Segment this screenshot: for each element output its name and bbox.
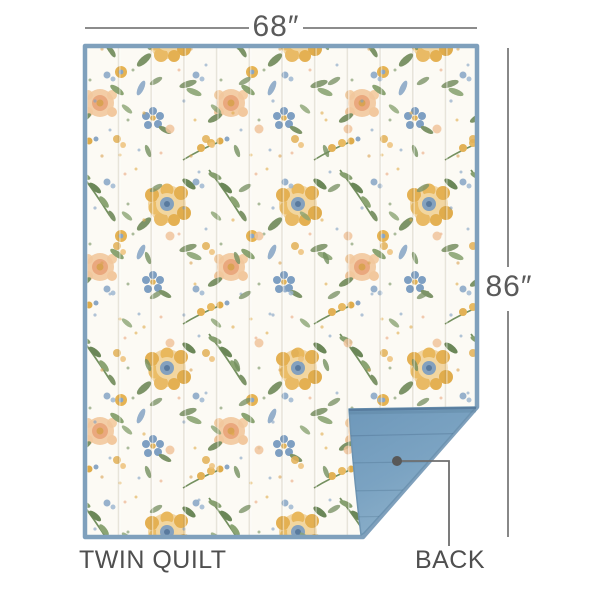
- leader-dot-icon: [392, 456, 402, 466]
- width-dimension-value: 68″: [229, 12, 323, 42]
- back-fold-fabric: [349, 407, 476, 535]
- product-variant-label: TWIN QUILT: [79, 548, 227, 573]
- height-dimension-value: 86″: [481, 272, 537, 302]
- product-diagram: 68″ 86″ TWIN QUILT BACK: [0, 0, 600, 600]
- back-side-label: BACK: [414, 548, 486, 573]
- fold-crease-shadow: [349, 411, 476, 413]
